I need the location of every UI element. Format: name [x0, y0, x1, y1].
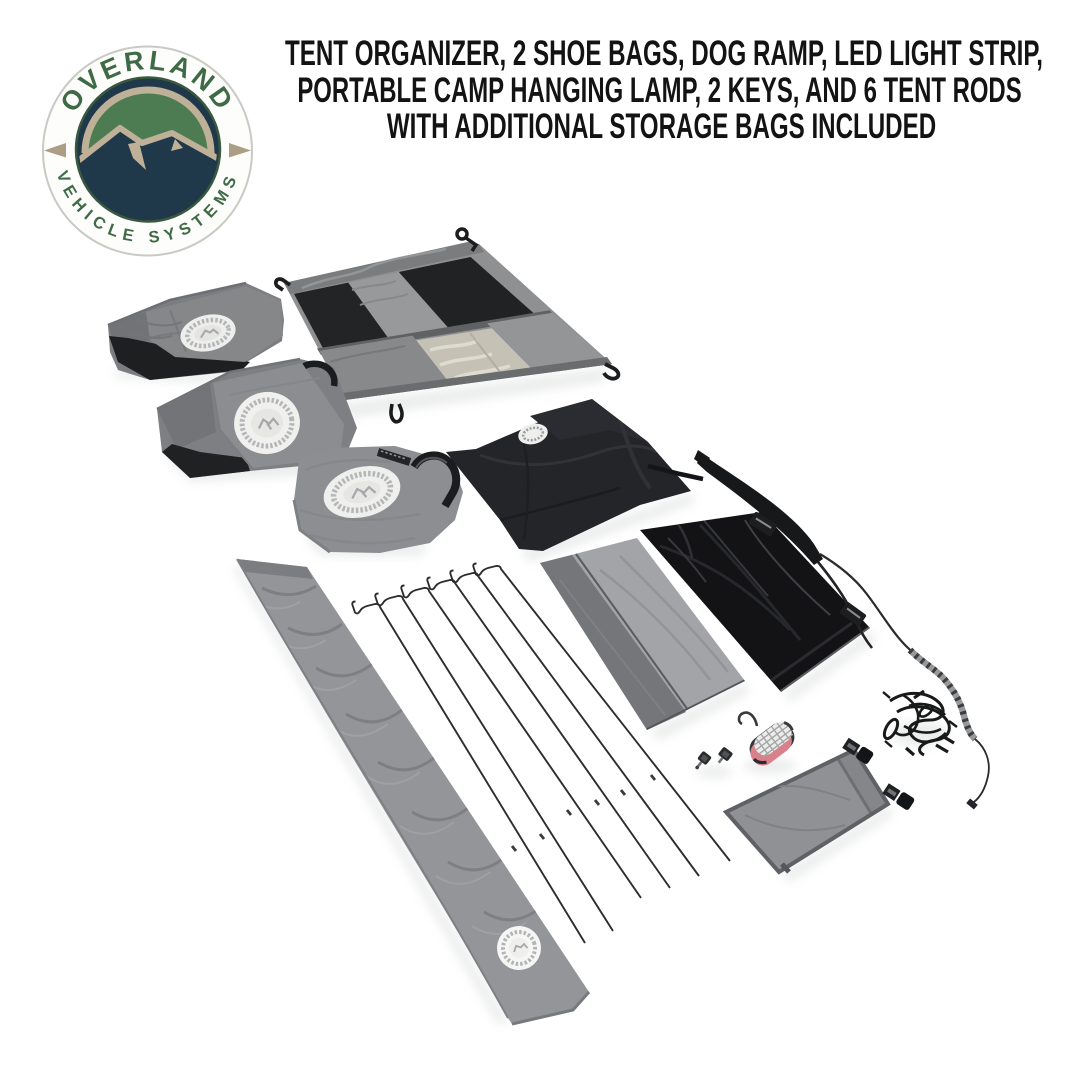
svg-text:TENT ORGANIZER, 2 SHOE BAGS, D: TENT ORGANIZER, 2 SHOE BAGS, DOG RAMP, L… — [285, 35, 1043, 73]
svg-text:WITH ADDITIONAL STORAGE BAGS I: WITH ADDITIONAL STORAGE BAGS INCLUDED — [387, 108, 936, 146]
svg-text:PORTABLE CAMP HANGING LAMP, 2: PORTABLE CAMP HANGING LAMP, 2 KEYS, AND … — [297, 72, 1021, 111]
